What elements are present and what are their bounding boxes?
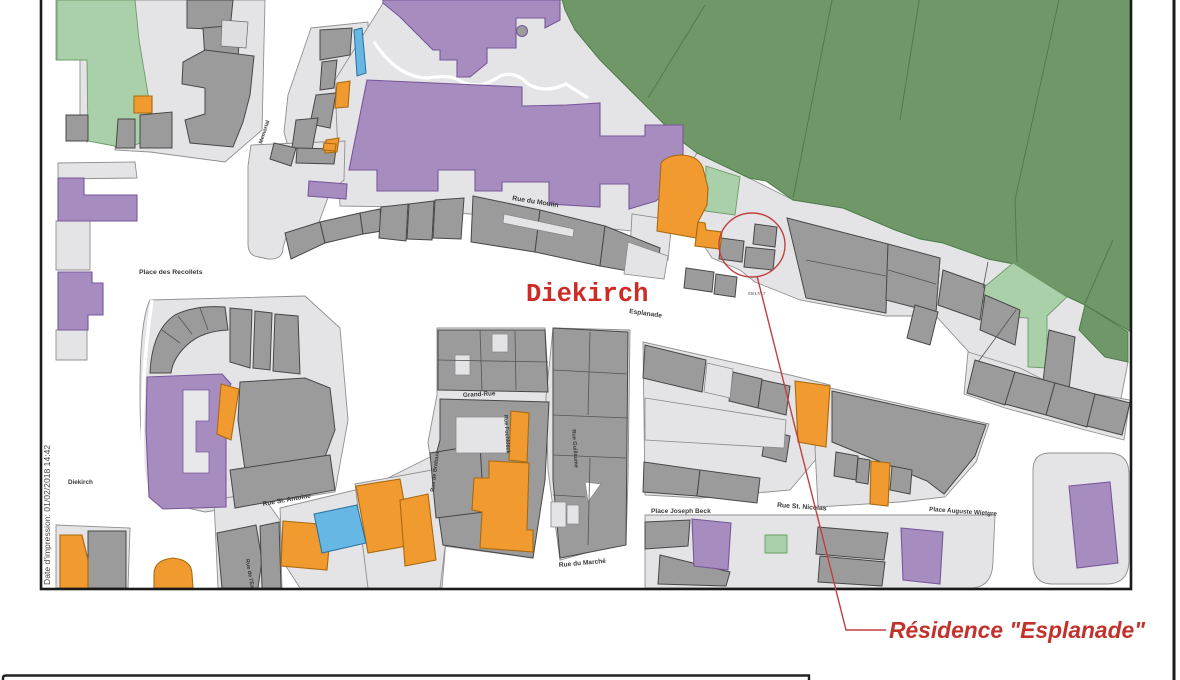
svg-text:Place Joseph Beck: Place Joseph Beck bbox=[651, 508, 711, 515]
svg-text:Rue du Marché: Rue du Marché bbox=[559, 558, 607, 569]
svg-text:Date d'impression: 01/02/2018: Date d'impression: 01/02/2018 14:42 bbox=[42, 445, 52, 585]
svg-text:05/17/17: 05/17/17 bbox=[748, 291, 766, 296]
svg-text:Résidence "Esplanade": Résidence "Esplanade" bbox=[889, 617, 1146, 643]
svg-text:Diekirch: Diekirch bbox=[526, 280, 648, 309]
svg-text:Esplanade: Esplanade bbox=[629, 308, 663, 320]
svg-text:Diekirch: Diekirch bbox=[68, 479, 93, 486]
svg-text:Place des Recollets: Place des Recollets bbox=[139, 269, 203, 276]
